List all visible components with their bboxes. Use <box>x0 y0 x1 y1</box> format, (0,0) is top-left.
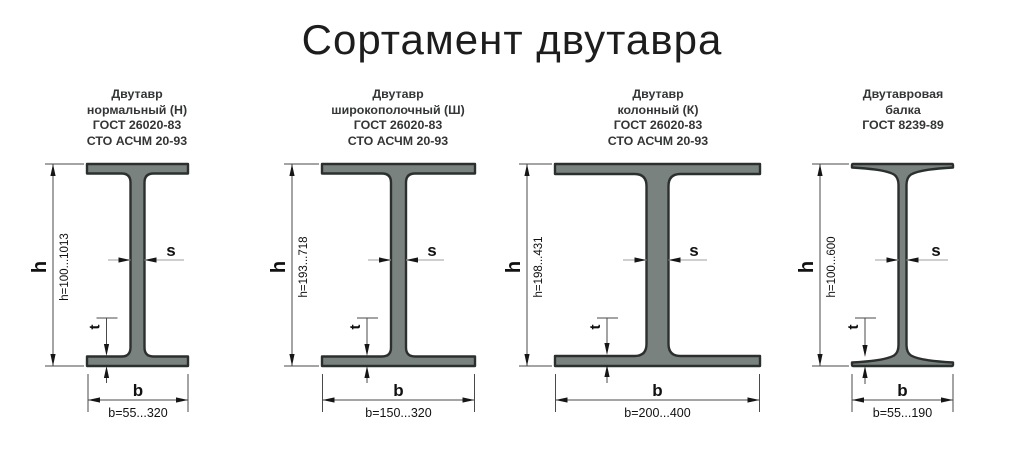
beam-diagram-wide-flange: h h=193...718 s t b b=150...320 <box>265 150 500 425</box>
beam-name-line: нормальный (Н) <box>27 103 247 119</box>
h-range-label: h=100...600 <box>826 236 838 297</box>
b-dim-label: b <box>652 381 662 400</box>
b-dim-label: b <box>897 381 907 400</box>
h-dim-label: h <box>796 261 818 273</box>
b-dim-label: b <box>133 381 143 400</box>
arrow-down-icon <box>50 354 55 366</box>
ibeam-shape <box>87 164 188 366</box>
h-range-label: h=100...1013 <box>59 233 71 300</box>
b-range-label: b=55...190 <box>873 406 932 420</box>
s-dim-label: s <box>689 241 698 260</box>
arrow-up-icon <box>289 164 294 176</box>
b-range-label: b=200...400 <box>624 406 690 420</box>
arrow-left-icon <box>88 397 100 402</box>
arrow-up-icon <box>50 164 55 176</box>
arrow-right-icon <box>635 257 647 262</box>
beam-header-column: Двутавр колонный (К) ГОСТ 26020-83 СТО А… <box>548 87 768 149</box>
beam-standard: ГОСТ 26020-83 <box>548 118 768 134</box>
h-range-label: h=198...431 <box>533 236 545 297</box>
t-dim-label: t <box>87 325 104 330</box>
arrow-right-icon <box>379 257 391 262</box>
b-dim-label: b <box>393 381 403 400</box>
arrow-right-icon <box>941 397 953 402</box>
arrow-right-icon <box>748 397 760 402</box>
arrow-down-icon <box>862 345 867 357</box>
arrow-right-icon <box>119 257 131 262</box>
beam-standard: СТО АСЧМ 20-93 <box>27 134 247 150</box>
beam-name-line: Двутавр <box>288 87 508 103</box>
arrow-down-icon <box>289 354 294 366</box>
beam-name-line: балка <box>793 103 1013 119</box>
beam-standard: СТО АСЧМ 20-93 <box>288 134 508 150</box>
arrow-left-icon <box>323 397 335 402</box>
beam-standard: ГОСТ 26020-83 <box>288 118 508 134</box>
ibeam-shape <box>322 164 475 366</box>
arrow-down-icon <box>524 354 529 366</box>
beam-header-normal: Двутавр нормальный (Н) ГОСТ 26020-83 СТО… <box>27 87 247 149</box>
s-dim-label: s <box>427 241 436 260</box>
arrow-down-icon <box>364 344 369 356</box>
ibeam-shape <box>555 164 760 366</box>
beam-name-line: колонный (К) <box>548 103 768 119</box>
h-dim-label: h <box>29 261 51 273</box>
arrow-right-icon <box>176 397 188 402</box>
arrow-right-icon <box>463 397 475 402</box>
b-range-label: b=55...320 <box>108 406 167 420</box>
t-dim-label: t <box>347 325 364 330</box>
beam-diagram-normal: h h=100...1013 s t b b=55...320 <box>20 150 255 425</box>
beam-diagram-balka: h h=100...600 s t b b=55...190 <box>785 150 1020 425</box>
beam-header-wide-flange: Двутавр широкополочный (Ш) ГОСТ 26020-83… <box>288 87 508 149</box>
b-range-label: b=150...320 <box>365 406 431 420</box>
beam-name-line: широкополочный (Ш) <box>288 103 508 119</box>
arrow-left-icon <box>406 257 418 262</box>
arrow-up-icon <box>817 164 822 176</box>
arrow-down-icon <box>604 343 609 355</box>
arrow-up-icon <box>364 366 369 378</box>
arrow-left-icon <box>669 257 681 262</box>
beam-standard: ГОСТ 26020-83 <box>27 118 247 134</box>
arrow-down-icon <box>104 344 109 356</box>
arrow-left-icon <box>556 397 568 402</box>
page-title: Сортамент двутавра <box>0 16 1024 64</box>
h-range-label: h=193...718 <box>298 236 310 297</box>
t-dim-label: t <box>587 325 604 330</box>
arrow-left-icon <box>145 257 157 262</box>
arrow-left-icon <box>907 257 919 262</box>
beam-header-balka: Двутавровая балка ГОСТ 8239-89 <box>793 87 1013 134</box>
h-dim-label: h <box>503 261 525 273</box>
arrow-up-icon <box>862 366 867 378</box>
beam-standard: ГОСТ 8239-89 <box>793 118 1013 134</box>
arrow-left-icon <box>852 397 864 402</box>
t-dim-label: t <box>845 325 862 330</box>
s-dim-label: s <box>166 241 175 260</box>
s-dim-label: s <box>931 241 940 260</box>
arrow-up-icon <box>524 164 529 176</box>
arrow-down-icon <box>817 354 822 366</box>
h-dim-label: h <box>268 261 290 273</box>
arrow-up-icon <box>104 366 109 378</box>
beam-diagram-column: h h=198...431 s t b b=200...400 <box>500 150 770 425</box>
beam-name-line: Двутавровая <box>793 87 1013 103</box>
beam-name-line: Двутавр <box>548 87 768 103</box>
beam-standard: СТО АСЧМ 20-93 <box>548 134 768 150</box>
ibeam-assortment-diagram: Сортамент двутавра Двутавр нормальный (Н… <box>0 0 1024 450</box>
ibeam-shape <box>852 164 953 366</box>
arrow-right-icon <box>887 257 899 262</box>
beam-name-line: Двутавр <box>27 87 247 103</box>
